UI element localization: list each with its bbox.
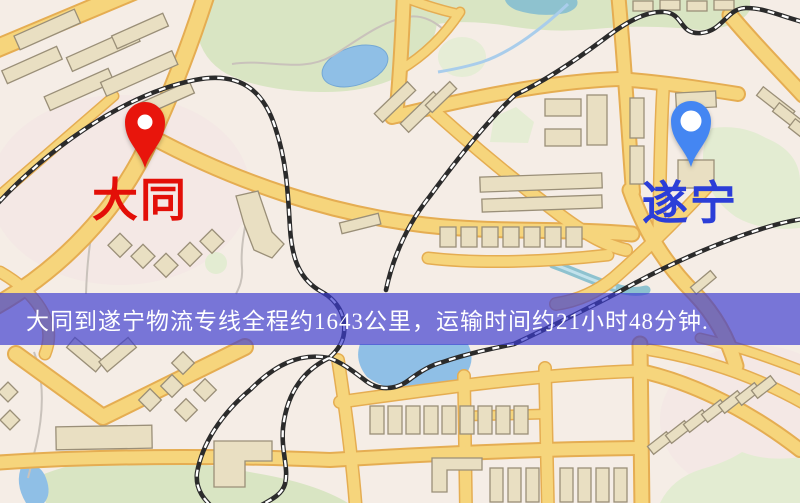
route-info-banner: 大同到遂宁物流专线全程约1643公里，运输时间约21小时48分钟. — [0, 293, 800, 345]
destination-marker-icon — [668, 98, 714, 168]
map-canvas — [0, 0, 800, 503]
destination-label: 遂宁 — [642, 181, 738, 227]
building-row-mid — [440, 227, 582, 247]
map-image: 大同 遂宁 大同到遂宁物流专线全程约1643公里，运输时间约21小时48分钟. — [0, 0, 800, 503]
origin-label: 大同 — [92, 178, 188, 224]
origin-marker-icon — [122, 99, 168, 169]
route-info-text: 大同到遂宁物流专线全程约1643公里，运输时间约21小时48分钟. — [0, 302, 709, 336]
